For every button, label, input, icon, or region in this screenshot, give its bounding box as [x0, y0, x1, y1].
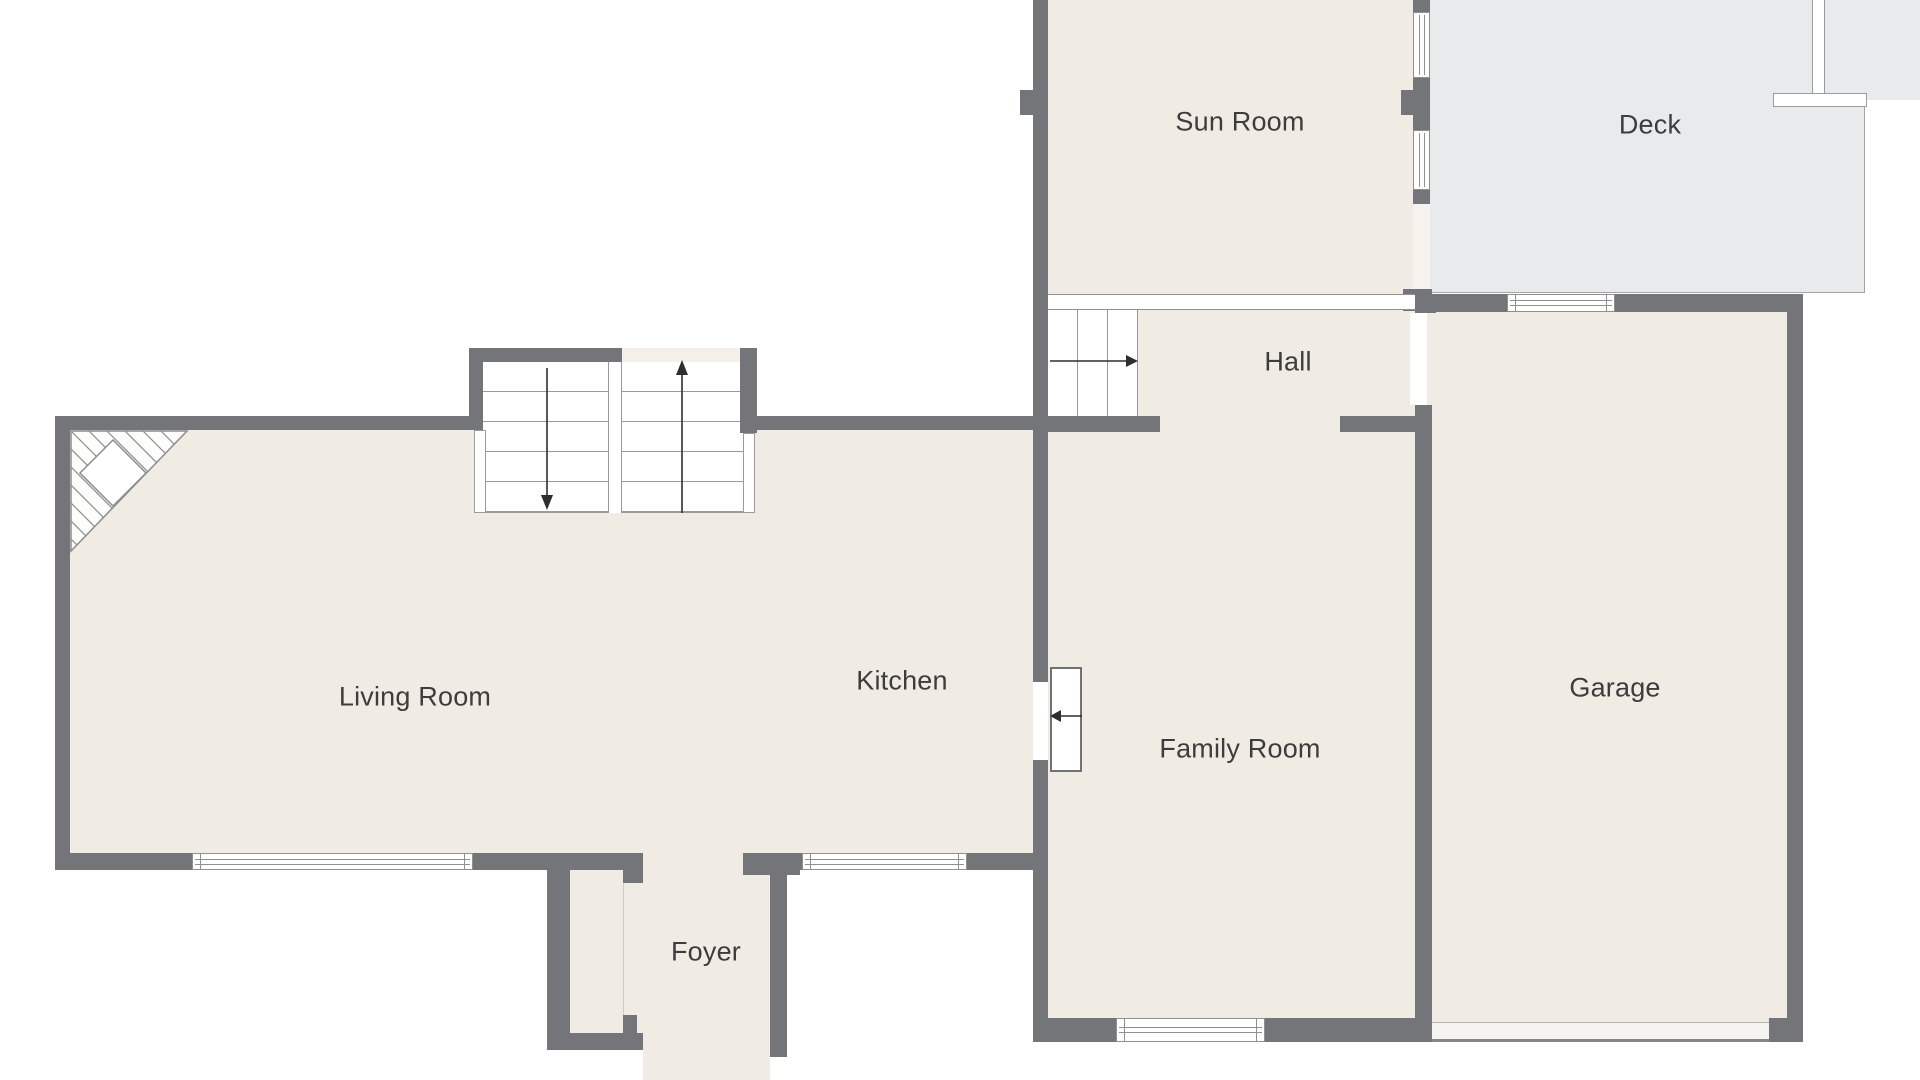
main-staircase-left-rail — [474, 430, 486, 513]
deck-steps-bar — [1773, 93, 1867, 107]
wall-living-bottom-1 — [55, 853, 192, 870]
wall-foyer-tooth-bottom — [623, 1015, 637, 1033]
wall-sunroom-right-3 — [1413, 190, 1430, 204]
hall-stair-right-arrow — [1050, 354, 1138, 368]
wall-foyer-tooth-top — [623, 870, 643, 883]
room-label-living-room: Living Room — [339, 682, 491, 713]
kitchen-window — [802, 853, 967, 870]
wall-garage-top-1 — [1436, 294, 1507, 312]
wall-sunroom-left-stub — [1020, 90, 1033, 115]
floor-plan-canvas: Sun Room Deck Hall Living Room Kitchen F… — [0, 0, 1920, 1080]
wall-sunroom-right-2 — [1413, 78, 1430, 130]
sunroom-window-lower — [1413, 130, 1430, 190]
family-room-window — [1116, 1018, 1265, 1042]
room-label-sun-room: Sun Room — [1175, 107, 1304, 138]
wall-sunroom-right-1 — [1413, 0, 1430, 12]
foyer-opening-strip — [643, 853, 743, 870]
hall-garage-doorway — [1410, 313, 1427, 405]
foyer-entry-strip — [643, 1035, 770, 1080]
wall-foyer-bottom — [547, 1033, 643, 1050]
wall-foyer-right — [770, 875, 787, 1057]
sun-room-floor — [1048, 0, 1413, 309]
wall-family-bottom-2 — [1265, 1018, 1432, 1042]
kitchen-door-swing-arrow — [1050, 710, 1082, 722]
garage-window — [1507, 294, 1615, 312]
wall-kitchen-bottom-1 — [787, 853, 802, 870]
fireplace-icon — [70, 430, 190, 554]
room-label-deck: Deck — [1619, 110, 1681, 141]
wall-sunroom-right-stub — [1401, 90, 1413, 115]
deck-floor — [1430, 0, 1865, 293]
wall-foyer-left — [547, 853, 570, 1050]
wall-garage-top-2 — [1615, 294, 1803, 312]
sunroom-hall-opening-band — [1048, 294, 1415, 310]
room-label-foyer: Foyer — [671, 937, 741, 968]
kitchen-family-doorway-gap — [1033, 682, 1048, 760]
wall-family-room-right — [1415, 405, 1432, 1042]
garage-floor — [1427, 312, 1787, 1024]
main-staircase-right-rail — [743, 433, 755, 513]
living-room-window — [192, 853, 473, 870]
wall-garage-bottom-right-block — [1769, 1018, 1803, 1042]
wall-stairwell-top — [469, 348, 622, 362]
deck-floor-extension — [1863, 0, 1920, 100]
room-label-hall: Hall — [1264, 347, 1311, 378]
wall-kitchen-bottom-2 — [967, 853, 1033, 870]
main-staircase-divider-rail — [608, 362, 622, 513]
stair-down-arrow — [540, 366, 554, 511]
wall-kitchen-family-divider-lower — [1033, 760, 1048, 1018]
wall-kitchen-top — [740, 416, 1033, 430]
wall-hall-bottom-left — [1033, 416, 1160, 432]
wall-living-room-top — [55, 416, 469, 430]
wall-family-bottom-1 — [1033, 1018, 1116, 1042]
family-room-floor — [1048, 419, 1415, 1018]
room-label-garage: Garage — [1569, 673, 1660, 704]
sunroom-window-upper — [1413, 12, 1430, 78]
deck-steps-vertical — [1812, 0, 1825, 95]
sunroom-deck-door-opening — [1413, 204, 1430, 289]
room-label-family-room: Family Room — [1159, 734, 1320, 765]
foyer-closet-line — [623, 883, 624, 1015]
room-label-kitchen: Kitchen — [856, 666, 947, 697]
wall-garage-right — [1787, 294, 1803, 1042]
garage-door — [1432, 1022, 1769, 1042]
wall-living-room-left — [55, 416, 70, 870]
wall-garage-top-left-block — [1415, 294, 1436, 313]
wall-sunroom-hall-left — [1033, 0, 1048, 682]
stair-up-arrow — [675, 360, 689, 513]
